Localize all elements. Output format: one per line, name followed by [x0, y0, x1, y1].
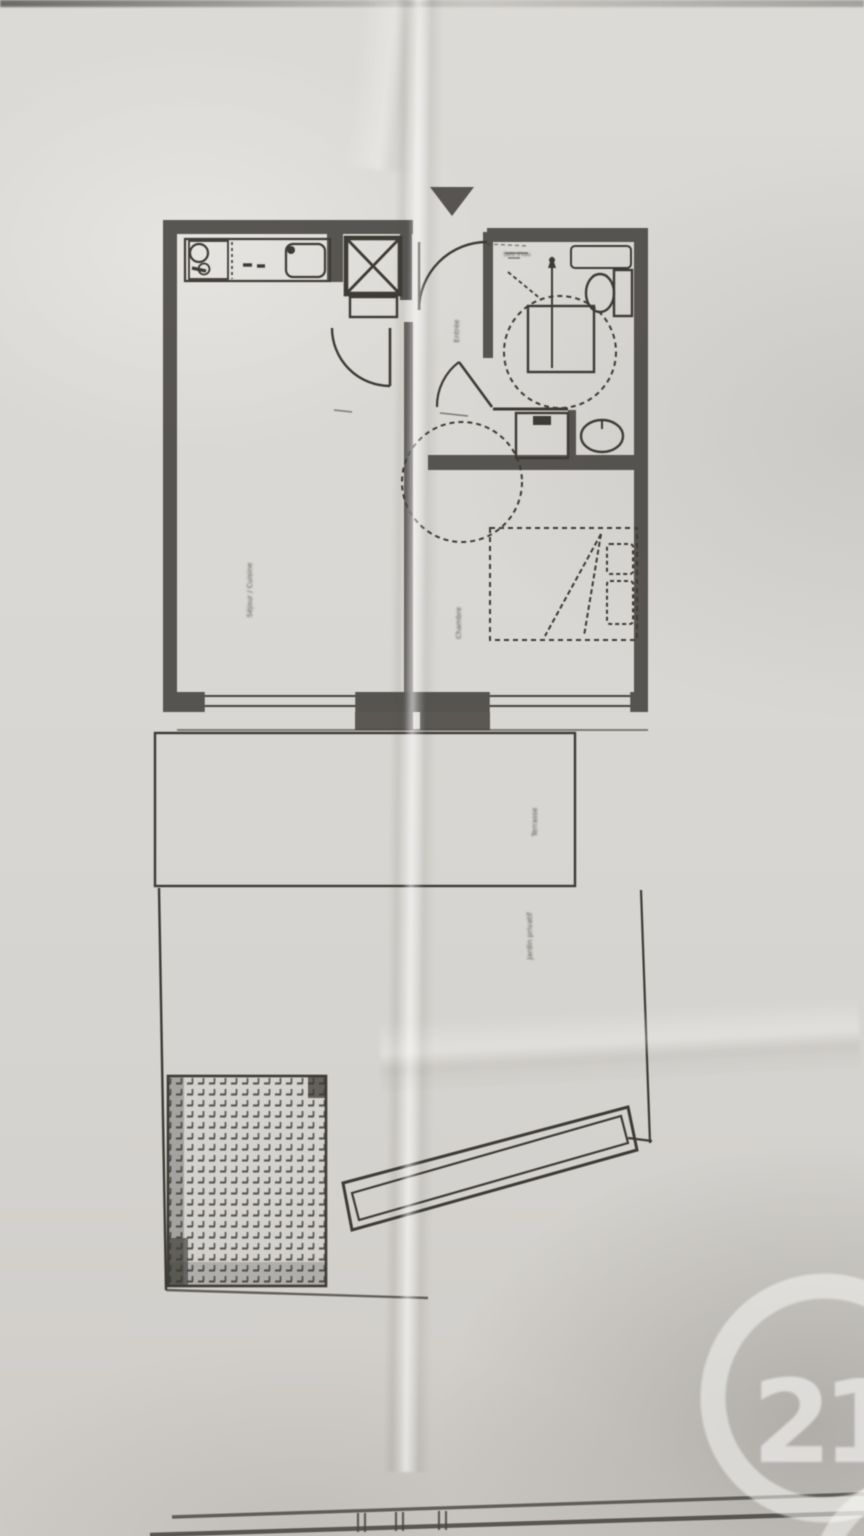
bathroom-fixtures	[493, 246, 632, 458]
living-door	[332, 328, 390, 386]
photographed-floor-plan-sheet: Entrée Séjour / Cuisine Chambre Salle d'…	[0, 0, 864, 1536]
terrace-outline	[155, 733, 575, 886]
toilet	[586, 270, 632, 316]
label-bathroom: Salle d'eau	[503, 252, 531, 258]
kitchen-hob	[190, 244, 208, 262]
century21-watermark: 21	[667, 1240, 864, 1536]
label-bedroom: Chambre	[455, 607, 463, 639]
bathroom-door	[437, 362, 492, 407]
pillow	[607, 581, 633, 624]
washing-machine	[516, 413, 568, 458]
washbasin	[581, 420, 623, 452]
kitchen-counter	[185, 239, 330, 281]
label-terrace: Terrasse	[531, 808, 539, 838]
shelf	[571, 246, 631, 268]
label-living-kitchen: Séjour / Cuisine	[246, 563, 254, 618]
duct-shaft	[346, 238, 400, 317]
shower	[528, 306, 594, 372]
terrace-deck	[168, 1076, 326, 1286]
pillow	[607, 544, 633, 574]
label-garden: Jardin privatif	[526, 912, 534, 961]
bed	[490, 528, 637, 640]
century21-number: 21	[752, 1356, 864, 1490]
label-entry: Entrée	[453, 320, 461, 343]
